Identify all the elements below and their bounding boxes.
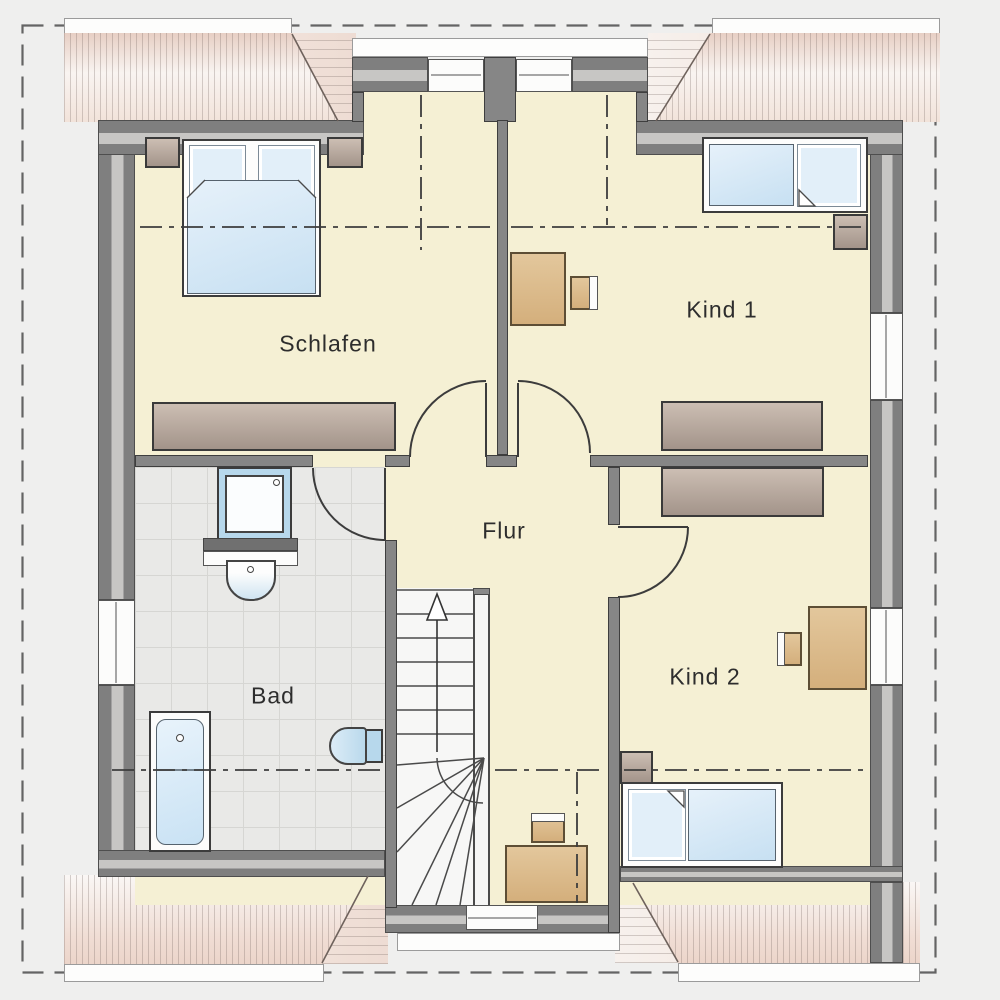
pillow-kind2 xyxy=(628,789,686,861)
staircase-newel-post xyxy=(473,588,490,595)
partition-schlafen-kind1 xyxy=(497,120,508,455)
chair-kind2-backrest xyxy=(777,632,785,666)
bathtub-faucet xyxy=(176,734,184,742)
gable-bottom-eave xyxy=(397,933,620,951)
room-label-schlafen: Schlafen xyxy=(279,331,377,358)
room-label-kind1: Kind 1 xyxy=(686,297,757,324)
room-label-flur: Flur xyxy=(482,518,526,545)
wardrobe-kind2 xyxy=(661,467,824,517)
partition-mid-b xyxy=(385,455,410,467)
nightstand-schlafen-right xyxy=(327,137,363,168)
window-schlafen-gable xyxy=(428,59,484,92)
gable-wall-return-left xyxy=(352,92,364,122)
partition-bad-stair xyxy=(385,540,397,908)
floor-plan-canvas: Schlafen Kind 1 Kind 2 Bad Flur xyxy=(0,0,1000,1000)
dormer-top-right-eave xyxy=(712,18,940,34)
nightstand-schlafen-left xyxy=(145,137,180,168)
staircase-handrail xyxy=(473,588,490,905)
nightstand-kind2 xyxy=(620,751,653,784)
dormer-top-left-eave xyxy=(64,18,292,34)
outer-wall-left-upper xyxy=(98,120,135,600)
room-label-kind2: Kind 2 xyxy=(669,664,740,691)
washbasin-faucet xyxy=(247,566,254,573)
desk-kind2 xyxy=(808,606,867,690)
nightstand-kind1 xyxy=(833,214,868,250)
window-kind1 xyxy=(870,313,903,400)
blanket-kind2 xyxy=(688,789,776,861)
chair-kind1-backrest xyxy=(589,276,598,310)
gable-top-eave xyxy=(352,38,648,57)
toilet-bowl xyxy=(329,727,367,765)
window-kind1-gable xyxy=(516,59,572,92)
partition-flur-kind2-upper xyxy=(608,467,620,525)
partition-flur-kind2-lower xyxy=(608,597,620,933)
desk-flur xyxy=(505,845,588,903)
window-kind2 xyxy=(870,608,903,685)
dormer-bottom-left-eave xyxy=(64,964,324,982)
outer-wall-right-through-dormer xyxy=(870,882,903,963)
gable-wall-pier xyxy=(484,57,516,122)
outer-wall-bottom-right xyxy=(620,866,903,882)
pillow-kind1 xyxy=(797,144,861,207)
outer-wall-right-middle xyxy=(870,400,903,608)
shower-drain xyxy=(273,479,280,486)
gable-wall-right xyxy=(572,57,648,92)
washstand-counter xyxy=(203,538,298,551)
desk-kind1 xyxy=(510,252,566,326)
staircase xyxy=(397,588,473,905)
blanket-kind1 xyxy=(709,144,794,206)
outer-wall-bottom-left xyxy=(98,850,385,877)
gable-wall-return-right xyxy=(636,92,648,122)
partition-kind1-kind2 xyxy=(590,455,868,467)
partition-mid-a xyxy=(135,455,313,467)
gable-wall-left xyxy=(352,57,428,92)
outer-wall-right-lower xyxy=(870,685,903,882)
chair-flur-backrest xyxy=(531,813,565,822)
partition-mid-foot xyxy=(486,455,517,467)
dormer-bottom-right-eave xyxy=(678,963,920,982)
room-label-bad: Bad xyxy=(251,683,295,710)
blanket-schlafen xyxy=(187,180,316,294)
window-stair-gable xyxy=(466,905,538,930)
wardrobe-schlafen xyxy=(152,402,396,451)
outer-wall-left-lower xyxy=(98,685,135,877)
window-bad xyxy=(98,600,135,685)
wardrobe-kind1 xyxy=(661,401,823,451)
